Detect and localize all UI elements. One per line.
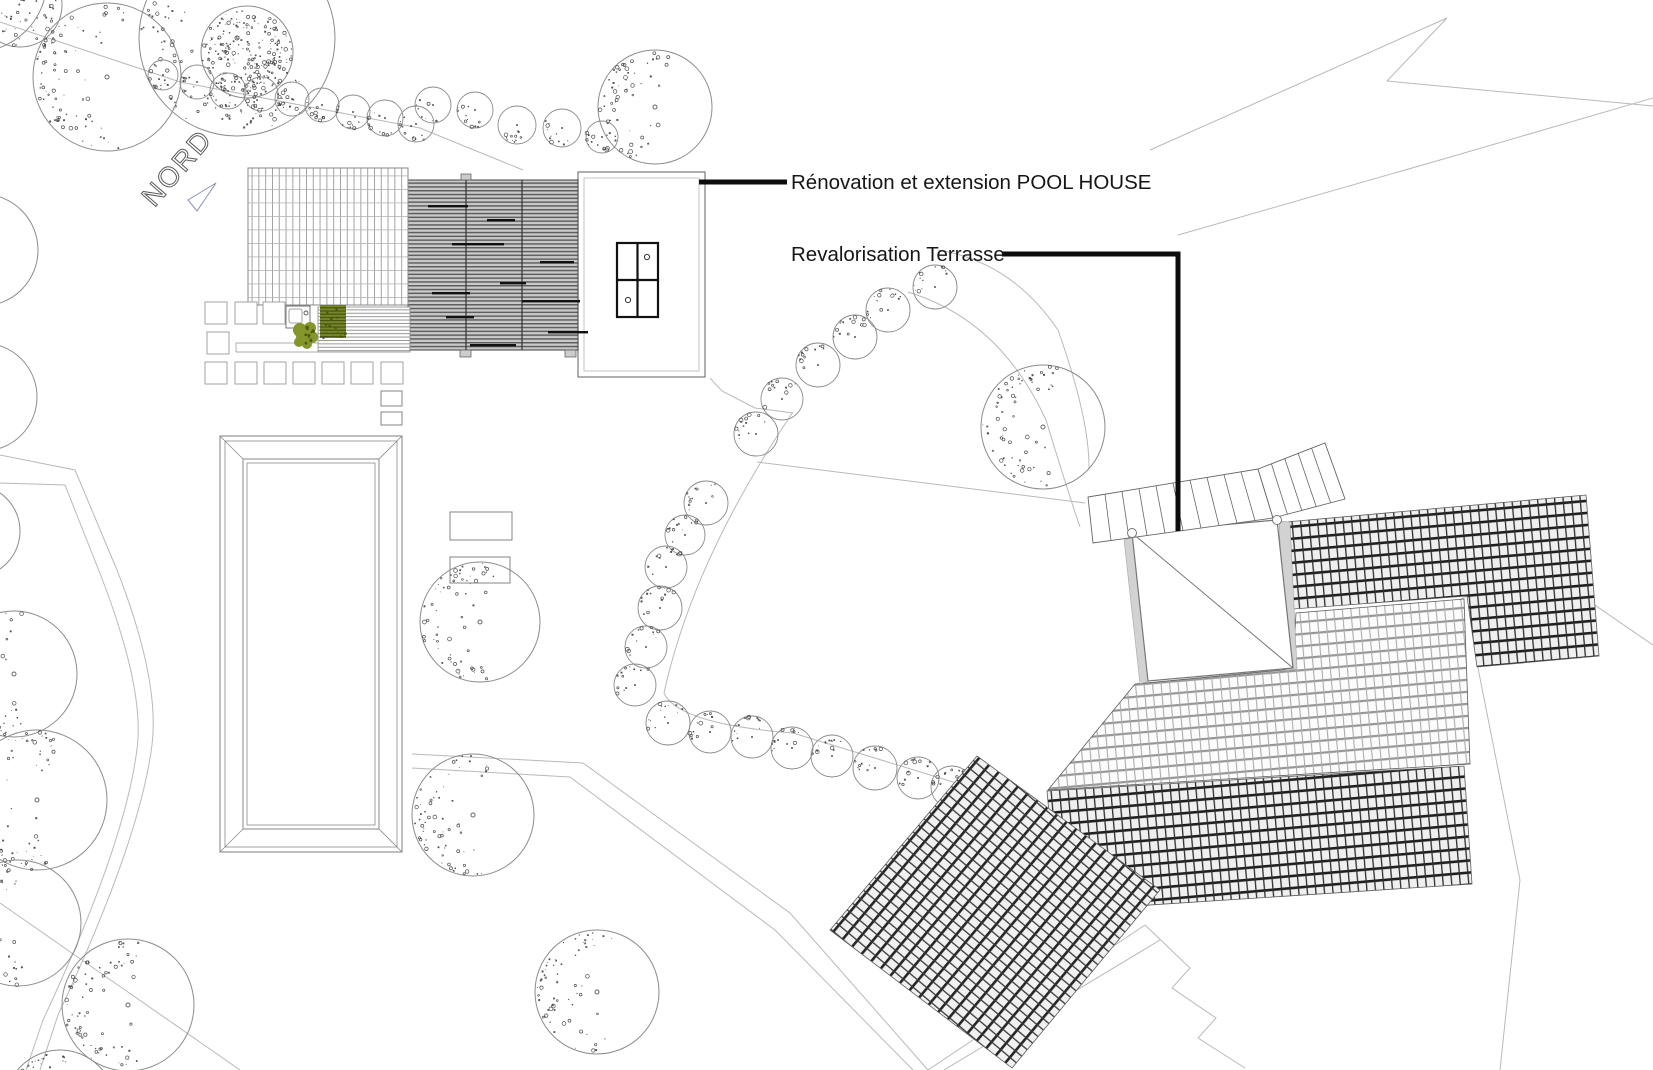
pool-layer (220, 436, 402, 852)
pool-edge (247, 463, 375, 825)
paver (207, 332, 229, 354)
pool-house-annotation: Rénovation et extension POOL HOUSE (791, 171, 1151, 194)
paver (263, 302, 285, 324)
planter-rect (450, 557, 510, 583)
paver (381, 362, 403, 384)
north-arrow-icon (188, 183, 216, 211)
paver (205, 362, 227, 384)
site-plan: Rénovation et extension POOL HOUSE Reval… (0, 0, 1653, 1070)
pool-edge (225, 441, 397, 847)
pool-house-roof (248, 168, 408, 305)
site-plan-canvas: Rénovation et extension POOL HOUSE Reval… (0, 0, 1653, 1070)
paver (322, 362, 344, 384)
paver (205, 302, 227, 324)
planter-rect (381, 412, 402, 425)
paver (235, 362, 257, 384)
paver (351, 362, 373, 384)
planter-rect (381, 391, 402, 406)
planter-rect (450, 512, 512, 540)
terrace-annotation: Revalorisation Terrasse (791, 243, 1005, 266)
terrace-steps (1258, 443, 1345, 518)
north-indicator: NORD (135, 123, 218, 212)
paver (235, 302, 257, 324)
pool-house-layer (205, 168, 705, 583)
pool-edge (243, 459, 379, 829)
paver (264, 362, 286, 384)
main-house-layer (830, 443, 1599, 1068)
paver (293, 362, 315, 384)
